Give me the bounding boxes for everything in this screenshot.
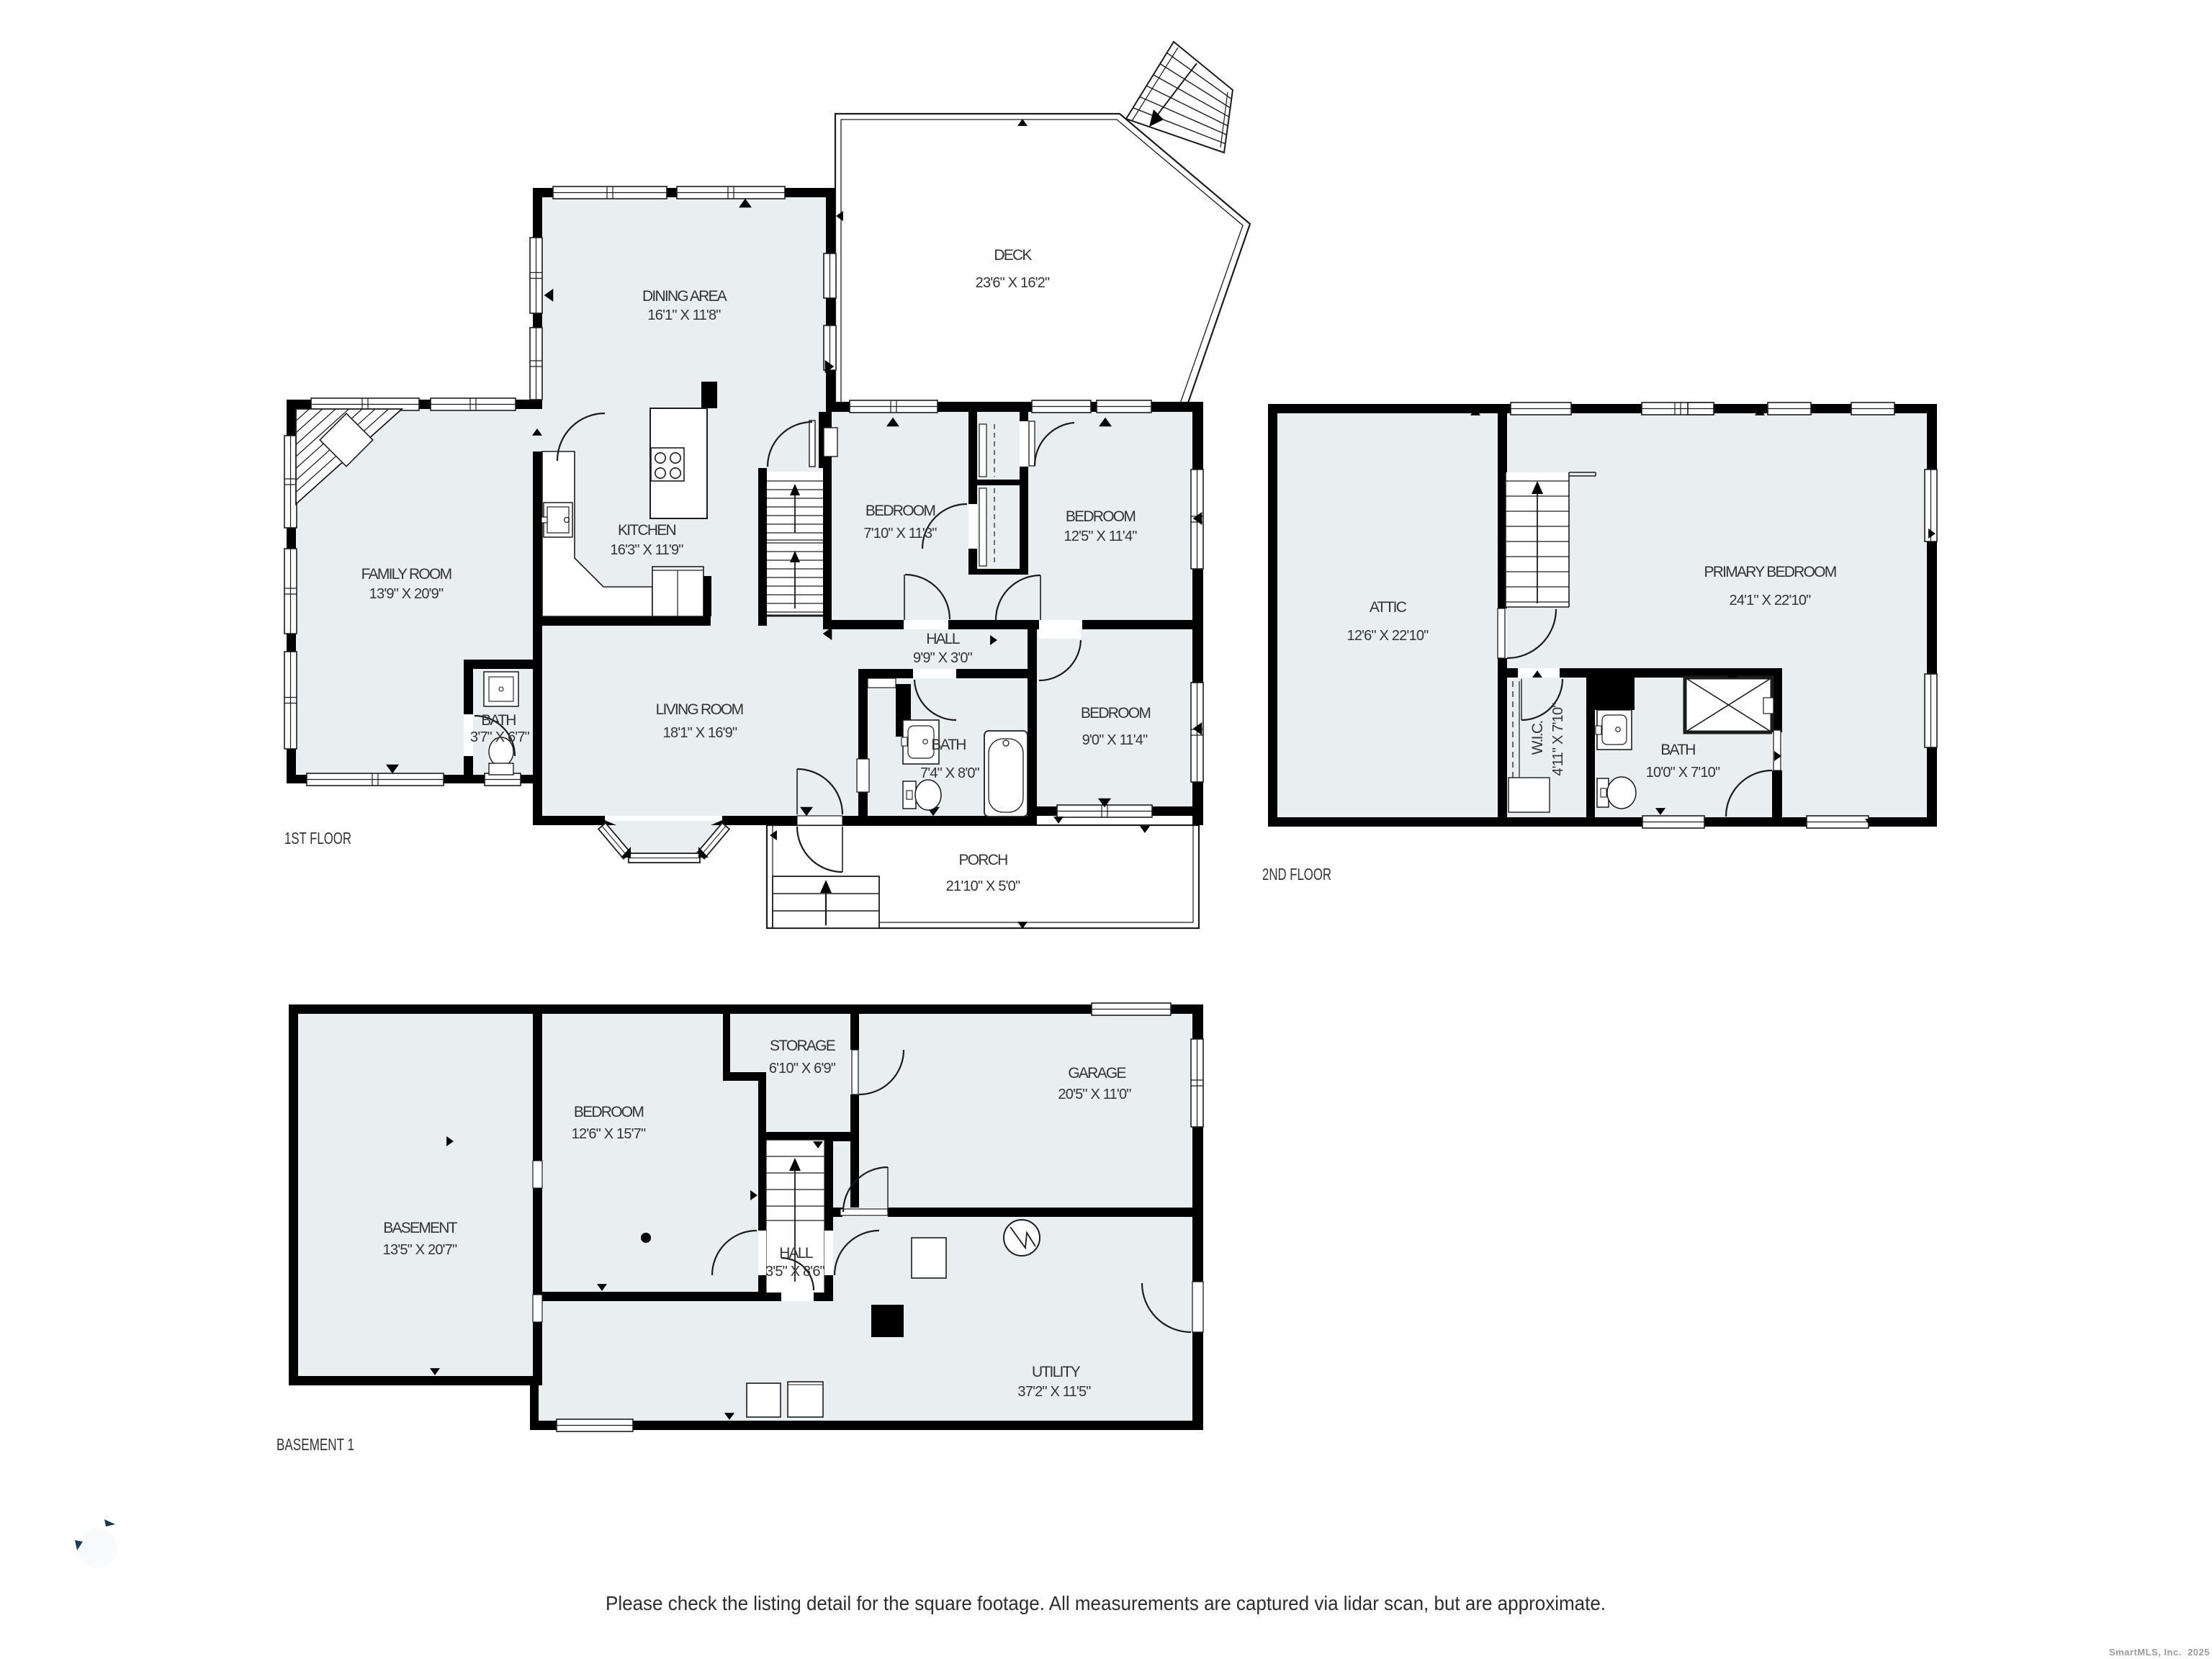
svg-text:HALL: HALL (926, 631, 960, 647)
svg-text:7'10" X 11'3": 7'10" X 11'3" (863, 526, 937, 541)
svg-text:13'5" X 20'7": 13'5" X 20'7" (383, 1242, 457, 1258)
svg-text:16'1" X 11'8": 16'1" X 11'8" (647, 307, 721, 323)
svg-text:BEDROOM: BEDROOM (1081, 705, 1151, 721)
svg-text:12'6" X 15'7": 12'6" X 15'7" (572, 1126, 646, 1142)
svg-text:LIVING ROOM: LIVING ROOM (656, 701, 743, 718)
svg-text:10'0" X 7'10": 10'0" X 7'10" (1646, 765, 1720, 781)
svg-text:37'2" X 11'5": 37'2" X 11'5" (1017, 1384, 1091, 1400)
svg-text:HALL: HALL (779, 1245, 813, 1262)
svg-text:21'10" X 5'0": 21'10" X 5'0" (946, 878, 1020, 894)
svg-text:DINING AREA: DINING AREA (642, 288, 727, 305)
svg-text:PORCH: PORCH (958, 852, 1007, 868)
svg-text:23'6" X 16'2": 23'6" X 16'2" (976, 275, 1050, 291)
svg-text:BEDROOM: BEDROOM (574, 1104, 644, 1120)
svg-text:7'4" X 8'0": 7'4" X 8'0" (920, 765, 980, 781)
svg-text:KITCHEN: KITCHEN (618, 522, 676, 539)
svg-text:DECK: DECK (994, 247, 1032, 264)
svg-text:3'5" X 8'6": 3'5" X 8'6" (765, 1264, 825, 1280)
svg-text:BEDROOM: BEDROOM (866, 503, 935, 519)
svg-text:6'10" X 6'9": 6'10" X 6'9" (769, 1061, 836, 1076)
svg-text:GARAGE: GARAGE (1068, 1065, 1126, 1082)
svg-text:16'3" X 11'9": 16'3" X 11'9" (610, 542, 683, 558)
svg-text:SmartMLS, Inc. 2025: SmartMLS, Inc. 2025 (2109, 1647, 2210, 1658)
svg-text:STORAGE: STORAGE (770, 1038, 836, 1054)
svg-text:1ST FLOOR: 1ST FLOOR (284, 829, 351, 848)
svg-text:FAMILY ROOM: FAMILY ROOM (361, 566, 451, 583)
svg-text:13'9" X 20'9": 13'9" X 20'9" (369, 586, 444, 602)
svg-text:ATTIC: ATTIC (1370, 599, 1407, 616)
svg-text:BEDROOM: BEDROOM (1066, 508, 1136, 525)
svg-text:24'1" X 22'10": 24'1" X 22'10" (1730, 593, 1812, 608)
svg-text:12'6" X 22'10": 12'6" X 22'10" (1347, 628, 1429, 644)
svg-text:12'5" X 11'4": 12'5" X 11'4" (1064, 529, 1137, 544)
svg-text:BATH: BATH (931, 737, 966, 753)
svg-text:BATH: BATH (1660, 742, 1695, 758)
svg-text:9'0" X 11'4": 9'0" X 11'4" (1082, 732, 1148, 748)
svg-text:2ND FLOOR: 2ND FLOOR (1262, 865, 1331, 884)
svg-text:BATH: BATH (481, 712, 516, 729)
svg-text:9'9" X 3'0": 9'9" X 3'0" (913, 650, 973, 666)
svg-text:UTILITY: UTILITY (1032, 1364, 1081, 1380)
svg-text:18'1" X 16'9": 18'1" X 16'9" (663, 725, 737, 741)
svg-text:BASEMENT: BASEMENT (383, 1220, 457, 1236)
svg-text:Please check the listing detai: Please check the listing detail for the … (606, 1592, 1606, 1614)
svg-text:3'7" X 6'7": 3'7" X 6'7" (470, 729, 530, 745)
svg-text:W.I.C.: W.I.C. (1529, 721, 1546, 755)
svg-text:BASEMENT 1: BASEMENT 1 (276, 1435, 354, 1454)
svg-text:4'11" X 7'10": 4'11" X 7'10" (1550, 703, 1566, 776)
svg-text:PRIMARY BEDROOM: PRIMARY BEDROOM (1704, 564, 1835, 580)
svg-text:20'5" X 11'0": 20'5" X 11'0" (1058, 1087, 1131, 1102)
